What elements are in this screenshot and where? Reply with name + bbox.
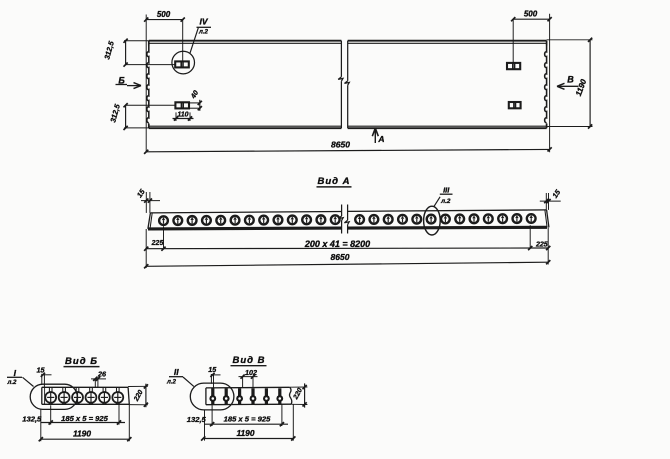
svg-text:А: А [377,134,384,144]
svg-text:132,5: 132,5 [187,415,207,424]
svg-text:1190: 1190 [236,428,254,438]
svg-text:500: 500 [524,9,538,18]
svg-text:Вид А: Вид А [317,176,350,187]
svg-text:л.2: л.2 [6,379,17,386]
svg-text:л.2: л.2 [440,198,451,205]
svg-text:225: 225 [151,240,164,247]
svg-text:III: III [443,185,450,194]
svg-text:8650: 8650 [331,252,350,262]
svg-text:110: 110 [177,111,188,118]
svg-text:15: 15 [37,366,46,375]
svg-text:л.2: л.2 [166,379,177,386]
svg-text:Вид В: Вид В [232,355,265,366]
svg-text:В: В [567,75,574,85]
svg-text:185 x 5 = 925: 185 x 5 = 925 [61,414,108,423]
svg-text:8650: 8650 [331,139,350,149]
svg-text:185 x 5 = 925: 185 x 5 = 925 [224,415,271,424]
svg-text:л.2: л.2 [198,29,209,36]
svg-text:1190: 1190 [73,429,91,439]
svg-text:200 x 41 = 8200: 200 x 41 = 8200 [304,239,370,249]
svg-text:225: 225 [535,241,548,248]
svg-text:Вид Б: Вид Б [65,356,98,367]
svg-text:IV: IV [199,17,208,27]
svg-text:15: 15 [208,365,217,374]
svg-text:500: 500 [157,10,171,19]
svg-text:132,5: 132,5 [22,415,42,424]
svg-text:II: II [174,367,179,377]
